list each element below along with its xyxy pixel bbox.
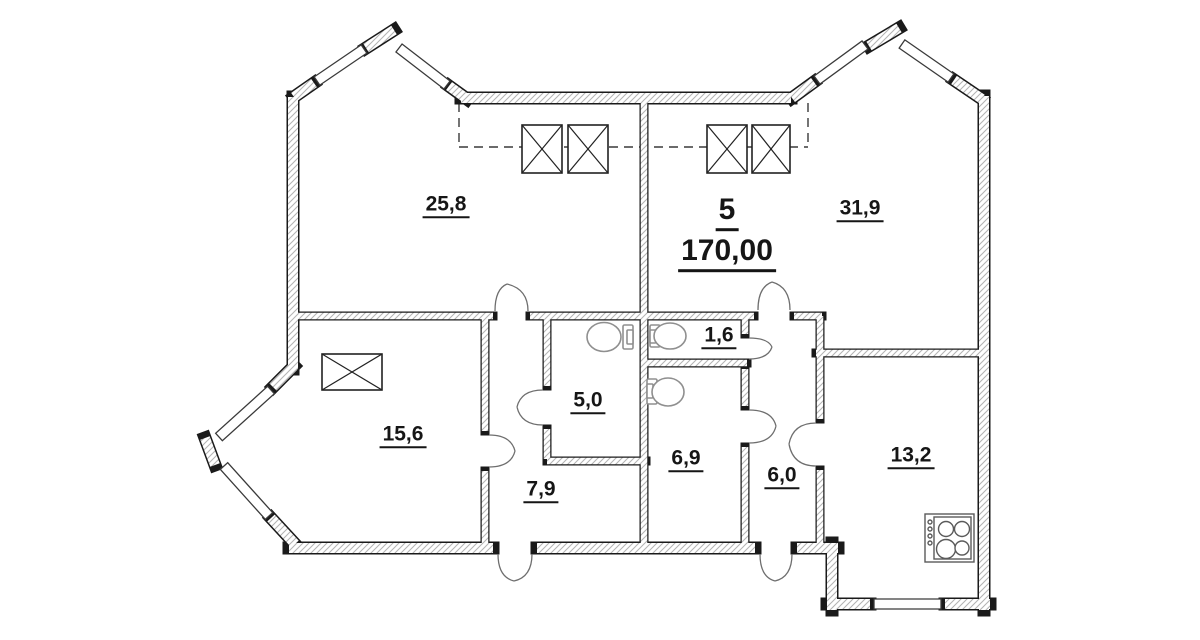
apartment-number-label: 5 <box>716 195 739 231</box>
window-icon <box>899 40 954 82</box>
window-icon <box>220 463 272 520</box>
window-icon <box>874 599 941 609</box>
door-swing-icon <box>760 554 792 581</box>
ventilation-shaft-icon <box>322 354 382 390</box>
room-area-label: 31,9 <box>837 197 884 222</box>
room-area-label: 25,8 <box>423 193 470 218</box>
window-icon <box>216 386 275 440</box>
door-swing-icon <box>789 423 816 466</box>
stove-icon <box>925 514 974 562</box>
ventilation-shaft-icon <box>522 125 562 173</box>
room-area-label: 6,0 <box>764 464 799 489</box>
apartment-total-area-label: 170,00 <box>678 236 776 272</box>
door-swing-icon <box>749 338 772 359</box>
room-area-label: 6,9 <box>668 447 703 472</box>
window-icon <box>314 45 367 85</box>
door-swing-icon <box>498 554 532 581</box>
window-icon <box>814 41 868 84</box>
door-swing-icon <box>749 410 776 443</box>
door-swing-icon <box>495 284 528 311</box>
floor-plan-drawing <box>0 0 1200 640</box>
window-icon <box>396 44 450 89</box>
toilet-icon <box>647 378 684 406</box>
ventilation-shaft-icon <box>707 125 747 173</box>
floor-plan: 25,8 31,9 5 170,00 1,6 5,0 15,6 6,9 6,0 … <box>0 0 1200 640</box>
toilet-icon <box>650 323 686 349</box>
room-area-label: 1,6 <box>701 324 736 349</box>
room-area-label: 5,0 <box>570 389 605 414</box>
ventilation-shaft-icon <box>568 125 608 173</box>
room-area-label: 7,9 <box>523 478 558 503</box>
door-swing-icon <box>758 282 790 310</box>
ventilation-shaft-icon <box>752 125 790 173</box>
walls <box>205 28 990 610</box>
door-swing-icon <box>517 390 543 425</box>
room-area-label: 13,2 <box>888 444 935 469</box>
door-swing-icon <box>489 435 515 467</box>
room-area-label: 15,6 <box>380 423 427 448</box>
toilet-icon <box>587 323 633 352</box>
